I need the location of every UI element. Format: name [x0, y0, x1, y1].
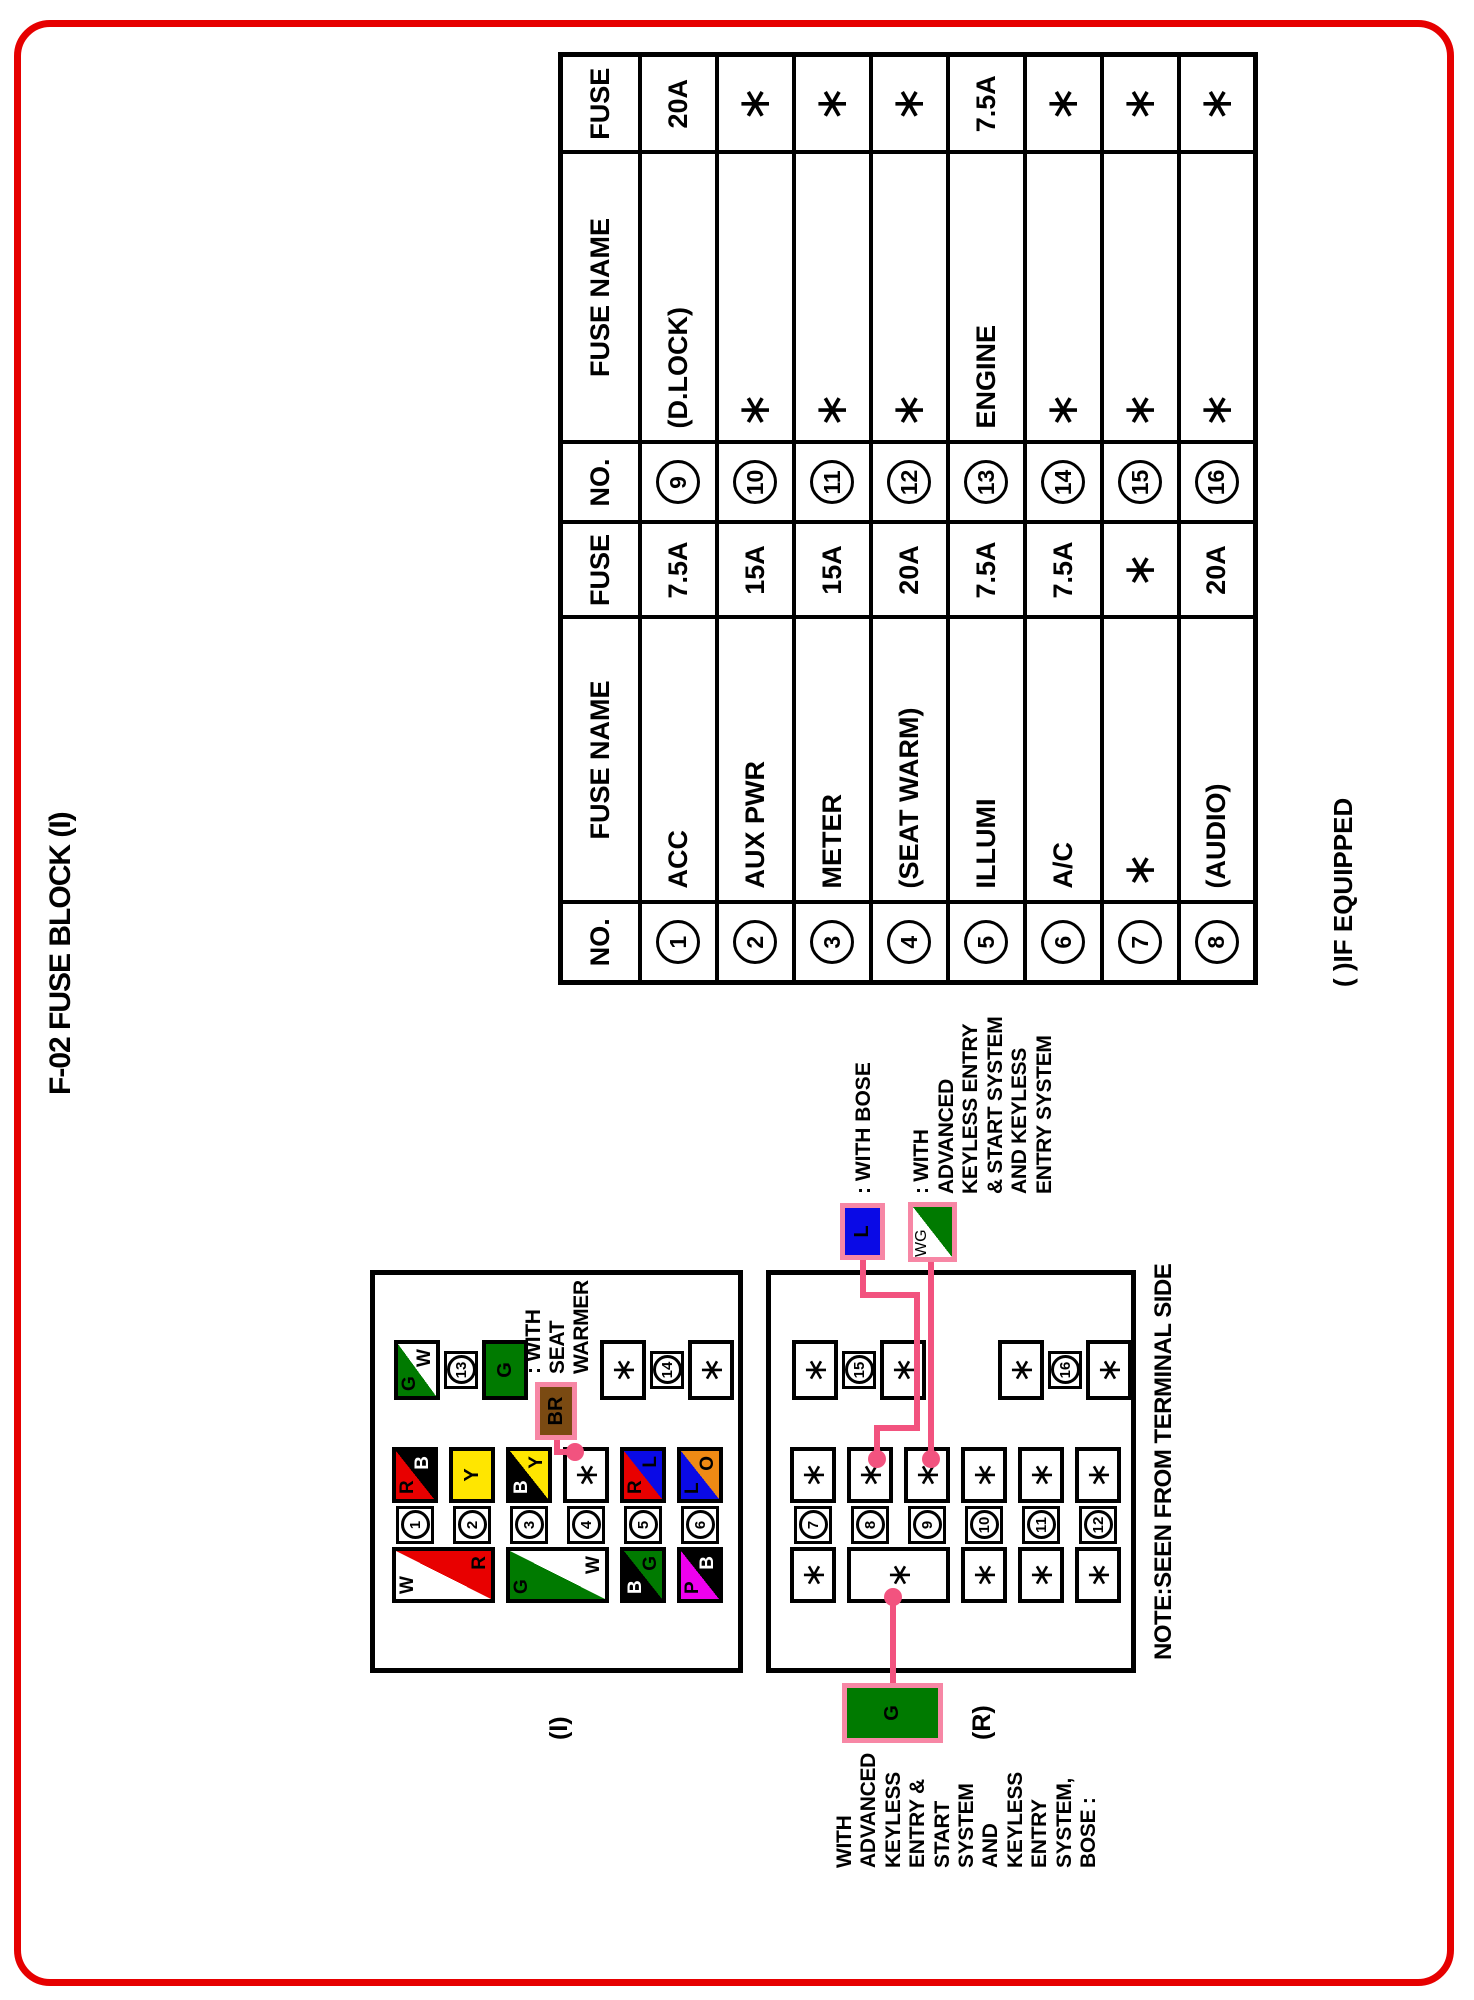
fuse-name-cell: ILLUMI — [948, 618, 1025, 903]
asterisk: ∗ — [567, 1451, 605, 1499]
fuse-number-circle: 4 — [572, 1511, 601, 1540]
asterisk: ∗ — [796, 1344, 834, 1396]
wire-color-label: W — [415, 1349, 434, 1367]
fuse-rating-cell: 7.5A — [640, 523, 717, 618]
fuse-name-cell: ENGINE — [948, 153, 1025, 443]
keyless-bose-note-line: BOSE : — [1077, 1753, 1101, 1868]
keyless-bose-note-line: KEYLESS — [882, 1753, 906, 1868]
fuse-name-cell: AUX PWR — [717, 618, 794, 903]
fuse-no-cell: 7 — [1102, 903, 1179, 983]
asterisk: ∗ — [884, 1344, 922, 1396]
fuse-slot-12-box: ∗ — [1075, 1447, 1121, 1503]
wire-color-label: G — [641, 1556, 660, 1571]
fuse-number-circle: 1 — [656, 920, 700, 964]
wire-color-label: L — [641, 1456, 660, 1468]
asterisk: ∗ — [794, 1551, 832, 1599]
keyless-bose-note-line: AND — [979, 1753, 1003, 1868]
fuse-name-cell: ∗ — [717, 153, 794, 443]
fuse-rating-cell: 7.5A — [948, 523, 1025, 618]
fuse-rating-cell: ∗ — [794, 55, 871, 153]
fuse-slot-1-box: RB — [392, 1447, 438, 1503]
scanned-manual-page: { "page": { "title": "F-02 FUSE BLOCK (I… — [0, 0, 1474, 2000]
fuse-rating-cell: ∗ — [871, 55, 948, 153]
fuse-no-cell: 8 — [1179, 903, 1256, 983]
fuse-number-circle: 1 — [401, 1511, 430, 1540]
fuse-number-square: 13 — [444, 1351, 478, 1389]
fuse-rating-cell: ∗ — [1102, 55, 1179, 153]
wire-color-label: B — [512, 1480, 531, 1494]
fuse-no-cell: 13 — [948, 443, 1025, 523]
fuse-number-square: 12 — [1079, 1506, 1117, 1544]
fuse-slot-14-box: ∗ — [688, 1340, 734, 1400]
asterisk: ∗ — [1090, 1344, 1128, 1396]
fuse-no-cell: 3 — [794, 903, 871, 983]
wire-color-label: R — [470, 1556, 489, 1570]
fuse-number-circle: 16 — [1051, 1356, 1080, 1385]
seat-warmer-label: : WITHSEATWARMER — [522, 1280, 594, 1374]
asterisk: ∗ — [851, 1551, 946, 1599]
fuse-slot-7-box: ∗ — [790, 1447, 836, 1503]
fuse-slot-10-box: ∗ — [961, 1447, 1007, 1503]
fuse-number-square: 9 — [908, 1506, 946, 1544]
fuse-name-cell: ∗ — [871, 153, 948, 443]
fuse-rating-cell: 20A — [871, 523, 948, 618]
asterisk: ∗ — [1022, 1451, 1060, 1499]
fuse-name-cell: (AUDIO) — [1179, 618, 1256, 903]
wire-color-label: B — [626, 1580, 645, 1594]
fuse-number-circle: 10 — [970, 1511, 999, 1540]
fuse-name-cell: ∗ — [1102, 618, 1179, 903]
table-row: 5ILLUMI7.5A13ENGINE7.5A — [948, 55, 1025, 983]
fuse-number-circle: 8 — [856, 1511, 885, 1540]
fuse-number-square: 8 — [851, 1506, 889, 1544]
fuse-slot-4-box: ∗ — [563, 1447, 609, 1503]
fuse-rating-cell: ∗ — [1179, 55, 1256, 153]
fuse-number-square: 4 — [567, 1506, 605, 1544]
fuse-left-box: PB — [677, 1547, 723, 1603]
wire-color-label: G — [847, 1688, 938, 1738]
wire-color-label: Y — [453, 1451, 491, 1499]
asterisk: ∗ — [692, 1344, 730, 1396]
fuse-number-circle: 8 — [1195, 920, 1239, 964]
table-header-fuse-name: FUSE NAME — [561, 153, 640, 443]
keyless-bose-note-line: ENTRY — [1028, 1753, 1052, 1868]
asterisk: ∗ — [794, 1451, 832, 1499]
fuse-slot-8-box: ∗ — [847, 1447, 893, 1503]
table-row: 6A/C7.5A14∗∗ — [1025, 55, 1102, 983]
wire-color-label: L — [683, 1482, 702, 1494]
keyless-bose-note-line: START — [931, 1753, 955, 1868]
fuse-number-square: 2 — [453, 1506, 491, 1544]
fuse-slot-16-box: ∗ — [1086, 1340, 1132, 1400]
fuse-slot-9-box: ∗ — [904, 1447, 950, 1503]
fuse-number-circle: 15 — [1118, 461, 1162, 505]
fuse-number-square: 1 — [396, 1506, 434, 1544]
fuse-number-circle: 3 — [515, 1511, 544, 1540]
wire-color-label: G — [913, 1229, 930, 1241]
seat-warmer-label-line: SEAT — [546, 1280, 570, 1374]
keyless-bose-note-line: WITH — [833, 1753, 857, 1868]
fuse-no-cell: 15 — [1102, 443, 1179, 523]
fuse-name-cell: ∗ — [794, 153, 871, 443]
wire-color-label: O — [698, 1456, 717, 1471]
keyless-label-line: ENTRY SYSTEM — [1033, 1017, 1058, 1194]
fuse-number-circle: 10 — [733, 461, 777, 505]
fuse-slot-11-box: ∗ — [1018, 1447, 1064, 1503]
keyless-bose-note-line: SYSTEM, — [1053, 1753, 1077, 1868]
table-row: 2AUX PWR15A10∗∗ — [717, 55, 794, 983]
fuse-number-circle: 13 — [964, 461, 1008, 505]
table-row: 7∗∗15∗∗ — [1102, 55, 1179, 983]
fuse-rating-cell: 20A — [640, 55, 717, 153]
fuse-slot-15-box: ∗ — [880, 1340, 926, 1400]
fuse-no-cell: 9 — [640, 443, 717, 523]
fuse-number-circle: 3 — [810, 920, 854, 964]
fuse-slot-3-box: BY — [506, 1447, 552, 1503]
keyless-label: : WITHADVANCEDKEYLESS ENTRY& START SYSTE… — [910, 1017, 1057, 1194]
fuse-number-circle: 7 — [799, 1511, 828, 1540]
rotated-canvas: F-02 FUSE BLOCK (I) NO.FUSE NAMEFUSENO.F… — [0, 0, 1474, 2000]
fuse-name-cell: (SEAT WARM) — [871, 618, 948, 903]
fuse-rating-cell: 7.5A — [1025, 523, 1102, 618]
fuse-left-box: GW — [506, 1547, 609, 1603]
fuse-rating-cell: ∗ — [1025, 55, 1102, 153]
fuse-number-circle: 11 — [1027, 1511, 1056, 1540]
fuse-number-circle: 12 — [1084, 1511, 1113, 1540]
fuse-slot-6-box: LO — [677, 1447, 723, 1503]
fuse-no-cell: 5 — [948, 903, 1025, 983]
fuse-number-circle: 2 — [458, 1511, 487, 1540]
asterisk: ∗ — [1079, 1451, 1117, 1499]
wire-color-label: G — [486, 1344, 524, 1396]
fuse-number-square: 11 — [1022, 1506, 1060, 1544]
keyless-wire-box: WG — [908, 1202, 957, 1262]
keyless-bose-note-line: KEYLESS — [1004, 1753, 1028, 1868]
block-i-label: (I) — [545, 1716, 574, 1740]
wire-color-label: P — [683, 1581, 702, 1594]
fuse-left-box: ∗ — [961, 1547, 1007, 1603]
fuse-table-grid: NO.FUSE NAMEFUSENO.FUSE NAMEFUSE1ACC7.5A… — [558, 52, 1258, 985]
keyless-bose-note-line: ENTRY & — [906, 1753, 930, 1868]
fuse-rating-cell: 15A — [717, 523, 794, 618]
fuse-left-box: ∗ — [1018, 1547, 1064, 1603]
bose-wire-box: L — [840, 1203, 885, 1260]
fuse-rating-cell: 15A — [794, 523, 871, 618]
table-row: 3METER15A11∗∗ — [794, 55, 871, 983]
fuse-slot-15-box: ∗ — [792, 1340, 838, 1400]
keyless-bose-note: WITHADVANCEDKEYLESSENTRY &STARTSYSTEMAND… — [833, 1753, 1101, 1868]
wire-color-label: L — [845, 1208, 880, 1255]
fuse-left-box: ∗ — [790, 1547, 836, 1603]
fuse-no-cell: 2 — [717, 903, 794, 983]
wire-color-label: BR — [540, 1387, 572, 1435]
wire-color-label: W — [913, 1242, 930, 1257]
fuse-no-cell: 6 — [1025, 903, 1102, 983]
keyless-label-line: KEYLESS ENTRY — [959, 1017, 984, 1194]
block-r-label: (R) — [968, 1705, 997, 1740]
bose-label: : WITH BOSE — [852, 1062, 876, 1194]
fuse-no-cell: 10 — [717, 443, 794, 523]
fuse-number-circle: 9 — [656, 461, 700, 505]
fuse-number-square: 10 — [965, 1506, 1003, 1544]
asterisk: ∗ — [1002, 1344, 1040, 1396]
if-equipped-footnote: ( )IF EQUIPPED — [1328, 798, 1359, 987]
seat-warmer-label-line: : WITH — [522, 1280, 546, 1374]
keyless-label-line: : WITH — [910, 1017, 935, 1194]
fuse-name-cell: ∗ — [1179, 153, 1256, 443]
fuse-number-square: 7 — [794, 1506, 832, 1544]
asterisk: ∗ — [908, 1451, 946, 1499]
fuse-name-cell: ∗ — [1102, 153, 1179, 443]
fuse-number-square: 16 — [1048, 1351, 1082, 1389]
asterisk: ∗ — [1022, 1551, 1060, 1599]
fuse-left-box: ∗ — [847, 1547, 950, 1603]
table-row: 4(SEAT WARM)20A12∗∗ — [871, 55, 948, 983]
fuse-no-cell: 4 — [871, 903, 948, 983]
keyless-label-line: & START SYSTEM — [984, 1017, 1009, 1194]
fuse-slot-13-box: GW — [394, 1340, 440, 1400]
table-row: 1ACC7.5A9(D.LOCK)20A — [640, 55, 717, 983]
page-title: F-02 FUSE BLOCK (I) — [44, 812, 78, 1095]
fuse-slot-16-box: ∗ — [998, 1340, 1044, 1400]
fuse-number-square: 3 — [510, 1506, 548, 1544]
wire-color-label: G — [400, 1376, 419, 1391]
asterisk: ∗ — [604, 1344, 642, 1396]
asterisk: ∗ — [1079, 1551, 1117, 1599]
seat-warmer-wire-box: BR — [535, 1382, 577, 1440]
fuse-left-box: WR — [392, 1547, 495, 1603]
table-header-fuse-name: FUSE NAME — [561, 618, 640, 903]
fuse-number-circle: 5 — [629, 1511, 658, 1540]
fuse-number-circle: 14 — [653, 1356, 682, 1385]
fuse-rating-cell: 20A — [1179, 523, 1256, 618]
fuse-no-cell: 1 — [640, 903, 717, 983]
fuse-number-circle: 11 — [810, 461, 854, 505]
fuse-number-circle: 15 — [845, 1356, 874, 1385]
fuse-number-circle: 5 — [964, 920, 1008, 964]
wire-color-label: R — [626, 1480, 645, 1494]
wire-color-label: W — [584, 1556, 603, 1574]
fuse-number-circle: 12 — [887, 461, 931, 505]
table-header-fuse: FUSE — [561, 55, 640, 153]
table-header-fuse: FUSE — [561, 523, 640, 618]
fuse-number-square: 6 — [681, 1506, 719, 1544]
keyless-label-line: AND KEYLESS — [1008, 1017, 1033, 1194]
fuse-name-cell: (D.LOCK) — [640, 153, 717, 443]
fuse-number-circle: 4 — [887, 920, 931, 964]
fuse-no-cell: 12 — [871, 443, 948, 523]
fuse-no-cell: 11 — [794, 443, 871, 523]
asterisk: ∗ — [851, 1451, 889, 1499]
fuse-number-circle: 14 — [1041, 461, 1085, 505]
fuse-slot-5-box: RL — [620, 1447, 666, 1503]
seat-warmer-label-line: WARMER — [570, 1280, 594, 1374]
fuse-number-circle: 13 — [447, 1356, 476, 1385]
fuse-number-circle: 2 — [733, 920, 777, 964]
table-row: 8(AUDIO)20A16∗∗ — [1179, 55, 1256, 983]
fuse-rating-cell: ∗ — [717, 55, 794, 153]
keyless-label-line: ADVANCED — [935, 1017, 960, 1194]
fuse-name-cell: A/C — [1025, 618, 1102, 903]
fuse-rating-cell: 7.5A — [948, 55, 1025, 153]
fuse-number-circle: 16 — [1195, 461, 1239, 505]
table-header-no-: NO. — [561, 903, 640, 983]
fuse-number-square: 15 — [842, 1351, 876, 1389]
terminal-side-note: NOTE:SEEN FROM TERMINAL SIDE — [1150, 1264, 1178, 1660]
fuse-table: NO.FUSE NAMEFUSENO.FUSE NAMEFUSE1ACC7.5A… — [558, 52, 1258, 985]
asterisk: ∗ — [965, 1551, 1003, 1599]
wire-color-label: W — [398, 1576, 417, 1594]
fuse-number-circle: 6 — [1041, 920, 1085, 964]
fuse-name-cell: ∗ — [1025, 153, 1102, 443]
fuse-left-box: BG — [620, 1547, 666, 1603]
wire-color-label: B — [698, 1556, 717, 1570]
keyless-bose-note-line: ADVANCED — [857, 1753, 881, 1868]
fuse-slot-14-box: ∗ — [600, 1340, 646, 1400]
fuse-number-square: 5 — [624, 1506, 662, 1544]
fuse-slot-2-box: Y — [449, 1447, 495, 1503]
wire-color-label: G — [512, 1579, 531, 1594]
keyless-bose-note-line: SYSTEM — [955, 1753, 979, 1868]
wire-color-label: R — [398, 1480, 417, 1494]
fuse-number-circle: 9 — [913, 1511, 942, 1540]
fuse-number-square: 14 — [650, 1351, 684, 1389]
fuse-no-cell: 14 — [1025, 443, 1102, 523]
asterisk: ∗ — [965, 1451, 1003, 1499]
fuse-left-box: ∗ — [1075, 1547, 1121, 1603]
wire-color-label: Y — [527, 1456, 546, 1469]
fuse-number-circle: 7 — [1118, 920, 1162, 964]
table-header-no-: NO. — [561, 443, 640, 523]
fuse-number-circle: 6 — [686, 1511, 715, 1540]
fuse-name-cell: METER — [794, 618, 871, 903]
wire-color-label: B — [413, 1456, 432, 1470]
fuse-name-cell: ACC — [640, 618, 717, 903]
keyless-g-wire-box: G — [842, 1683, 943, 1743]
fuse-no-cell: 16 — [1179, 443, 1256, 523]
fuse-rating-cell: ∗ — [1102, 523, 1179, 618]
